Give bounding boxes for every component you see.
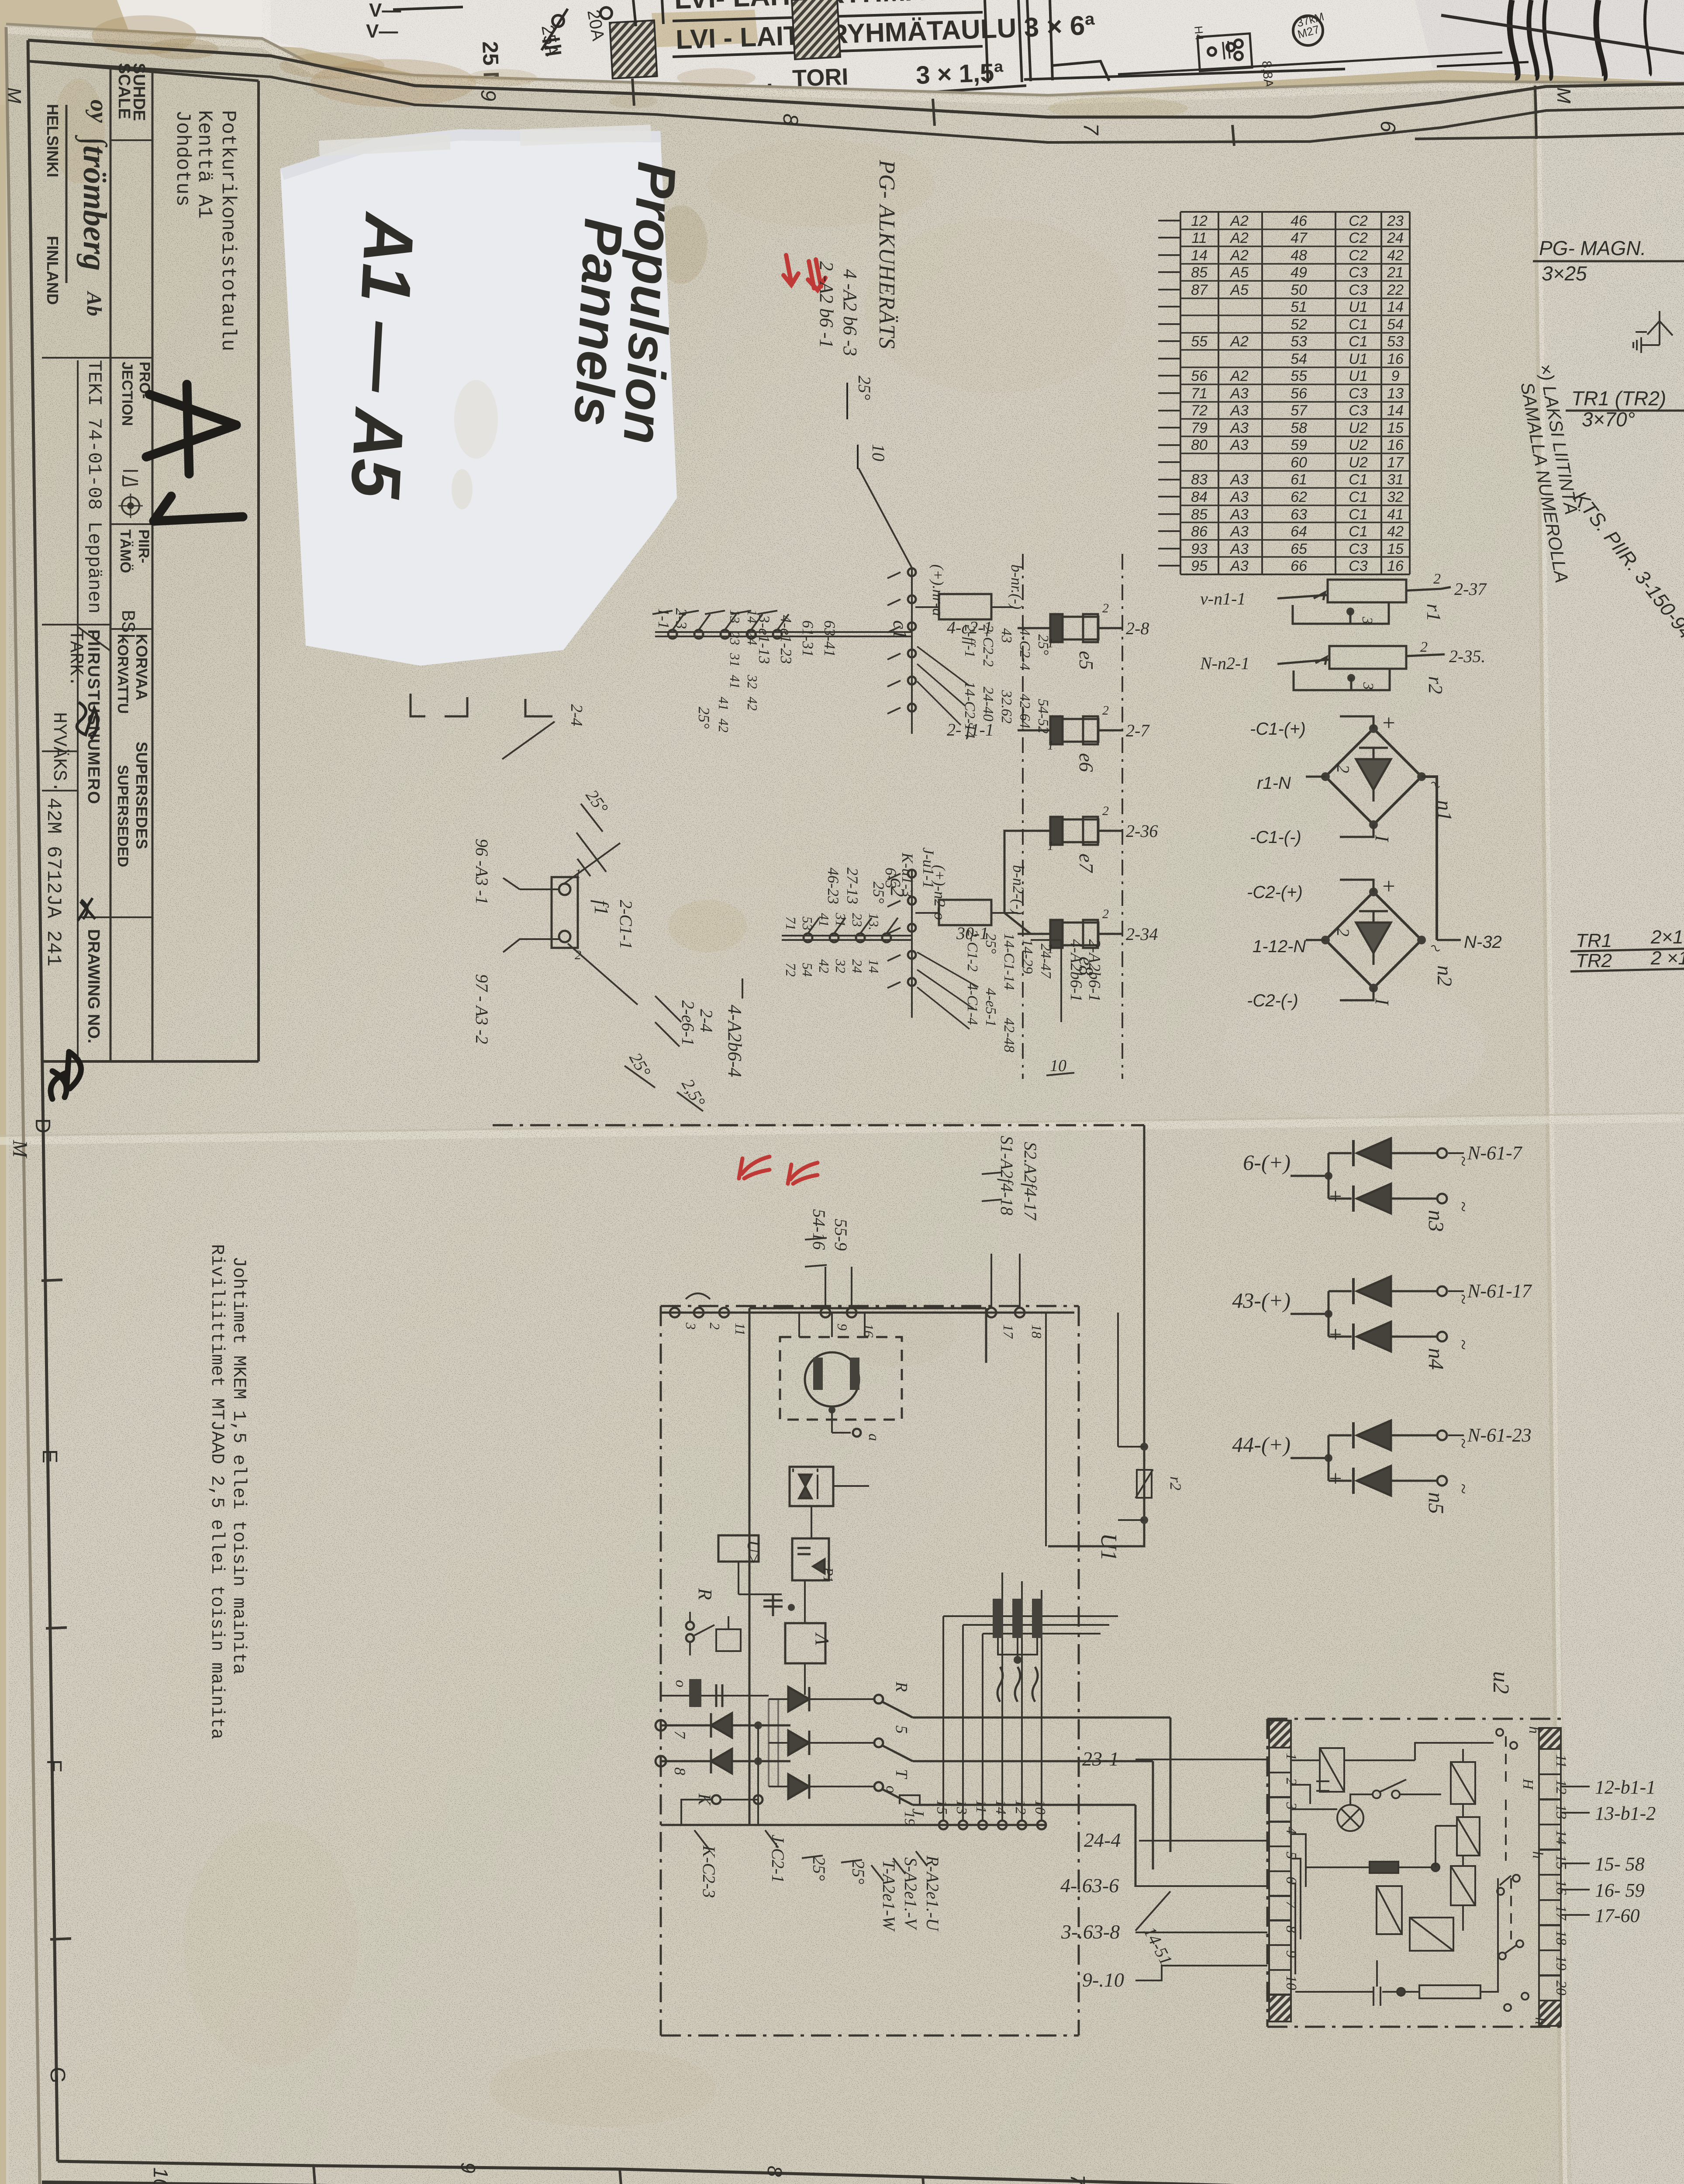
svg-text:16- 59: 16- 59 bbox=[1595, 1880, 1645, 1901]
svg-text:96 -A3 -1: 96 -A3 -1 bbox=[472, 839, 492, 905]
svg-text:SUPERSEDES: SUPERSEDES bbox=[133, 742, 151, 849]
svg-text:8: 8 bbox=[1283, 1925, 1299, 1933]
svg-text:C1: C1 bbox=[1349, 471, 1367, 488]
svg-text:1: 1 bbox=[1047, 738, 1054, 753]
svg-text:2-e6-1: 2-e6-1 bbox=[678, 1000, 698, 1046]
svg-text:Ab: Ab bbox=[83, 290, 106, 316]
svg-text:3×25: 3×25 bbox=[1542, 262, 1587, 285]
svg-text:22: 22 bbox=[1387, 282, 1404, 298]
svg-text:2: 2 bbox=[1420, 639, 1428, 655]
svg-text:2: 2 bbox=[1102, 804, 1109, 818]
svg-text:16: 16 bbox=[861, 1324, 877, 1337]
svg-text:16: 16 bbox=[1387, 351, 1404, 367]
svg-text:87: 87 bbox=[1191, 282, 1208, 298]
svg-text:42-64: 42-64 bbox=[1017, 694, 1033, 728]
svg-text:1: 1 bbox=[1047, 839, 1054, 853]
svg-text:5: 5 bbox=[892, 1725, 911, 1734]
svg-text:62: 62 bbox=[1291, 489, 1307, 505]
svg-text:16: 16 bbox=[1387, 437, 1404, 453]
svg-text:v-n1-1: v-n1-1 bbox=[1200, 589, 1246, 608]
svg-text:42-48: 42-48 bbox=[1001, 1018, 1017, 1052]
svg-text:2-4: 2-4 bbox=[697, 1009, 716, 1032]
svg-text:HELSINKI: HELSINKI bbox=[44, 104, 62, 177]
svg-text:56: 56 bbox=[1291, 385, 1307, 402]
svg-text:25°: 25° bbox=[1035, 634, 1051, 655]
svg-text:2-C1-2: 2-C1-2 bbox=[964, 930, 980, 971]
svg-text:U2: U2 bbox=[1349, 420, 1368, 436]
svg-text:15: 15 bbox=[934, 1800, 950, 1814]
svg-text:2-36: 2-36 bbox=[1126, 821, 1158, 841]
svg-text:A2: A2 bbox=[1229, 230, 1249, 246]
svg-text:SCALE: SCALE bbox=[115, 63, 133, 119]
svg-text:2: 2 bbox=[1333, 764, 1353, 773]
svg-text:2: 2 bbox=[1333, 928, 1353, 936]
svg-text:+: + bbox=[1328, 1466, 1343, 1491]
svg-text:PIIRUSTUSNUMERO: PIIRUSTUSNUMERO bbox=[84, 629, 103, 805]
svg-text:19: 19 bbox=[901, 1811, 918, 1826]
svg-text:80: 80 bbox=[1191, 437, 1208, 453]
svg-text:10: 10 bbox=[1050, 1057, 1066, 1075]
svg-text:-C2-(+): -C2-(+) bbox=[1247, 883, 1303, 902]
svg-text:65: 65 bbox=[1291, 541, 1307, 557]
svg-text:2 ×1,: 2 ×1, bbox=[1650, 947, 1684, 969]
svg-text:A3: A3 bbox=[1229, 558, 1249, 574]
svg-text:n4: n4 bbox=[1424, 1348, 1449, 1370]
svg-text:71: 71 bbox=[1191, 385, 1208, 402]
svg-text:14: 14 bbox=[1191, 247, 1208, 264]
svg-text:(+).nr-a: (+).nr-a bbox=[929, 564, 947, 616]
svg-text:15: 15 bbox=[1553, 1855, 1569, 1870]
svg-text:C3: C3 bbox=[1349, 541, 1368, 557]
svg-text:HYVÄKS.: HYVÄKS. bbox=[48, 712, 70, 793]
svg-text:9-.10: 9-.10 bbox=[1082, 1969, 1124, 1991]
svg-text:KORVATTU: KORVATTU bbox=[114, 634, 131, 714]
svg-text:C3: C3 bbox=[1349, 264, 1368, 281]
svg-text:Johtimet MKEM 1,5 ellei toisin: Johtimet MKEM 1,5 ellei toisin mainita bbox=[228, 1256, 249, 1675]
svg-text:+: + bbox=[1381, 711, 1396, 736]
svg-text:TR1: TR1 bbox=[1576, 930, 1612, 951]
svg-text:17: 17 bbox=[1001, 1324, 1016, 1339]
svg-text:4 -A2 b6 -3: 4 -A2 b6 -3 bbox=[839, 269, 861, 356]
svg-text:97 - A3 -2: 97 - A3 -2 bbox=[472, 974, 492, 1044]
svg-text:16: 16 bbox=[1553, 1880, 1569, 1895]
svg-text:S2.A2f4-17: S2.A2f4-17 bbox=[1021, 1142, 1040, 1221]
svg-text:SUPERSEDED: SUPERSEDED bbox=[114, 765, 131, 867]
svg-text:19: 19 bbox=[1553, 1956, 1569, 1970]
svg-text:15- 58: 15- 58 bbox=[1595, 1853, 1645, 1875]
svg-text:~: ~ bbox=[1453, 1339, 1474, 1350]
svg-text:42: 42 bbox=[716, 719, 732, 733]
svg-text:17-60: 17-60 bbox=[1595, 1905, 1640, 1926]
svg-text:56: 56 bbox=[1191, 368, 1208, 384]
svg-text:S1-A2f4-18: S1-A2f4-18 bbox=[997, 1136, 1017, 1215]
svg-text:2-C2-2: 2-C2-2 bbox=[980, 625, 996, 667]
svg-text:85: 85 bbox=[1191, 264, 1208, 281]
svg-text:A3: A3 bbox=[1229, 541, 1249, 557]
svg-text:10: 10 bbox=[149, 2167, 172, 2184]
svg-text:2-A2b6-1: 2-A2b6-1 bbox=[1085, 939, 1104, 1002]
svg-text:95: 95 bbox=[1191, 558, 1208, 574]
svg-text:r1: r1 bbox=[1423, 604, 1445, 622]
svg-text:57: 57 bbox=[1291, 402, 1308, 419]
svg-text:PIIR-: PIIR- bbox=[135, 529, 152, 563]
svg-text:72: 72 bbox=[783, 963, 799, 977]
svg-text:14-29: 14-29 bbox=[1019, 939, 1035, 974]
svg-text:14: 14 bbox=[993, 1800, 1009, 1814]
svg-text:A3: A3 bbox=[1229, 420, 1249, 436]
svg-text:b-n2-(-): b-n2-(-) bbox=[1010, 865, 1027, 915]
svg-text:32: 32 bbox=[833, 959, 849, 973]
svg-text:C3: C3 bbox=[1349, 558, 1368, 574]
svg-text:oy: oy bbox=[85, 100, 112, 123]
svg-text:Pannels: Pannels bbox=[562, 217, 634, 428]
svg-text:2-7: 2-7 bbox=[1126, 721, 1150, 740]
svg-text:T: T bbox=[892, 1769, 911, 1780]
svg-text:b-nr.(-): b-nr.(-) bbox=[1008, 564, 1025, 609]
svg-text:C3: C3 bbox=[1349, 402, 1368, 419]
svg-text:61-31: 61-31 bbox=[799, 620, 817, 657]
svg-text:41: 41 bbox=[816, 913, 832, 927]
svg-text:4-.63-6: 4-.63-6 bbox=[1060, 1874, 1119, 1897]
svg-text:8: 8 bbox=[763, 2166, 786, 2177]
svg-text:E: E bbox=[38, 1449, 61, 1463]
svg-text:A3: A3 bbox=[1229, 523, 1249, 540]
svg-text:4-C2-4: 4-C2-4 bbox=[1017, 628, 1033, 670]
svg-text:14-C2-14: 14-C2-14 bbox=[962, 681, 978, 738]
svg-text:16: 16 bbox=[1387, 558, 1404, 574]
svg-text:H: H bbox=[1520, 1778, 1536, 1790]
svg-text:14-C1-14: 14-C1-14 bbox=[1001, 933, 1017, 990]
svg-text:c1: c1 bbox=[889, 620, 911, 639]
svg-text:2: 2 bbox=[1102, 703, 1109, 718]
svg-text:R: R bbox=[892, 1681, 911, 1692]
svg-text:8: 8 bbox=[671, 1767, 689, 1775]
svg-text:42: 42 bbox=[745, 697, 760, 711]
svg-text:Kenttä A1: Kenttä A1 bbox=[193, 110, 216, 218]
svg-text:2: 2 bbox=[1433, 571, 1441, 587]
svg-text:D: D bbox=[31, 1118, 54, 1133]
svg-text:N-61-7: N-61-7 bbox=[1467, 1142, 1523, 1164]
svg-text:25°: 25° bbox=[870, 881, 887, 903]
svg-text:PG- MAGN.: PG- MAGN. bbox=[1539, 237, 1646, 259]
svg-text:h: h bbox=[1532, 2017, 1548, 2025]
svg-text:2×1,: 2×1, bbox=[1650, 926, 1684, 948]
svg-text:61: 61 bbox=[1291, 471, 1307, 488]
svg-text:TÄMÖ: TÄMÖ bbox=[117, 529, 134, 573]
svg-text:25°: 25° bbox=[983, 933, 999, 954]
svg-text:TARK.: TARK. bbox=[65, 629, 86, 687]
svg-text:h: h bbox=[1526, 1726, 1542, 1734]
svg-text:12: 12 bbox=[1191, 213, 1208, 229]
svg-text:53: 53 bbox=[1387, 333, 1404, 350]
svg-text:2: 2 bbox=[707, 1323, 723, 1330]
svg-text:55: 55 bbox=[1291, 368, 1307, 384]
svg-text:6: 6 bbox=[1376, 121, 1399, 132]
svg-text:Λ: Λ bbox=[811, 1632, 833, 1645]
svg-text:c2: c2 bbox=[887, 878, 909, 897]
svg-text:54: 54 bbox=[800, 963, 815, 977]
svg-text:2-ff-1: 2-ff-1 bbox=[962, 625, 978, 658]
svg-text:2-34: 2-34 bbox=[1126, 924, 1158, 944]
svg-text:F: F bbox=[42, 1759, 66, 1772]
svg-text:4-A2b6-1: 4-A2b6-1 bbox=[1067, 939, 1085, 1002]
svg-text:42: 42 bbox=[1387, 523, 1404, 540]
svg-text:A2: A2 bbox=[1229, 247, 1249, 264]
svg-text:2: 2 bbox=[1102, 601, 1109, 615]
svg-text:41: 41 bbox=[1387, 506, 1404, 523]
svg-text:3-e1-13: 3-e1-13 bbox=[756, 615, 773, 664]
svg-text:10: 10 bbox=[1032, 1800, 1048, 1814]
svg-text:N-n2-1: N-n2-1 bbox=[1200, 653, 1249, 673]
svg-text:N-32: N-32 bbox=[1464, 933, 1502, 952]
svg-text:49: 49 bbox=[1291, 264, 1307, 281]
svg-text:A5: A5 bbox=[1229, 264, 1249, 281]
svg-text:79: 79 bbox=[1191, 420, 1208, 436]
svg-text:A3: A3 bbox=[1229, 471, 1249, 488]
svg-text:r2: r2 bbox=[1425, 676, 1447, 694]
svg-text:60: 60 bbox=[1291, 454, 1307, 471]
svg-text:13.: 13. bbox=[866, 913, 882, 930]
svg-text:25°: 25° bbox=[809, 1856, 829, 1881]
svg-text:3: 3 bbox=[683, 1322, 699, 1330]
svg-text:r2: r2 bbox=[1167, 1476, 1184, 1490]
svg-text:C1: C1 bbox=[1349, 316, 1367, 333]
svg-text:84: 84 bbox=[1191, 489, 1208, 505]
svg-text:14: 14 bbox=[1387, 402, 1404, 419]
svg-text:9: 9 bbox=[1391, 368, 1400, 384]
svg-text:2-35.: 2-35. bbox=[1449, 646, 1485, 666]
svg-text:83: 83 bbox=[1191, 471, 1208, 488]
svg-text:4: 4 bbox=[1283, 1827, 1299, 1834]
svg-text:~: ~ bbox=[1453, 1483, 1474, 1494]
svg-text:54-16: 54-16 bbox=[809, 1209, 829, 1250]
svg-text:C1: C1 bbox=[1349, 489, 1367, 505]
svg-text:9: 9 bbox=[835, 1324, 850, 1330]
svg-text:G: G bbox=[46, 2067, 69, 2083]
svg-text:31: 31 bbox=[727, 653, 743, 667]
svg-text:11: 11 bbox=[973, 1800, 989, 1813]
svg-text:21: 21 bbox=[1387, 264, 1404, 281]
svg-text:13: 13 bbox=[727, 609, 743, 623]
svg-text:9: 9 bbox=[476, 90, 500, 101]
svg-text:A1 — A5: A1 — A5 bbox=[336, 210, 429, 501]
svg-text:U1: U1 bbox=[1349, 351, 1367, 367]
svg-text:32: 32 bbox=[745, 674, 760, 689]
svg-text:12-b1-1: 12-b1-1 bbox=[1595, 1776, 1656, 1798]
svg-text:+: + bbox=[1328, 1322, 1343, 1347]
svg-text:C3: C3 bbox=[1349, 385, 1368, 402]
svg-text:13: 13 bbox=[953, 1800, 970, 1814]
svg-text:50: 50 bbox=[1291, 282, 1307, 298]
svg-text:51: 51 bbox=[1291, 299, 1307, 315]
svg-text:14: 14 bbox=[866, 959, 882, 973]
svg-text:32.62: 32.62 bbox=[998, 690, 1015, 724]
svg-text:11: 11 bbox=[1191, 230, 1207, 246]
svg-text:54: 54 bbox=[1387, 316, 1404, 333]
svg-text:31: 31 bbox=[1387, 471, 1404, 488]
svg-text:46-23: 46-23 bbox=[825, 867, 842, 904]
svg-text:r1-N: r1-N bbox=[1257, 774, 1291, 793]
svg-text:N-61-23: N-61-23 bbox=[1467, 1424, 1532, 1446]
svg-text:54-52: 54-52 bbox=[1035, 699, 1051, 733]
svg-text:A3: A3 bbox=[1229, 489, 1249, 505]
svg-text:93: 93 bbox=[1191, 541, 1208, 557]
svg-text:43-(+): 43-(+) bbox=[1232, 1288, 1291, 1313]
svg-text:A2: A2 bbox=[1229, 333, 1249, 350]
svg-text:A3: A3 bbox=[1229, 402, 1249, 419]
svg-text:U2: U2 bbox=[1349, 437, 1368, 453]
svg-text:P1: P1 bbox=[821, 1567, 836, 1583]
svg-text:15: 15 bbox=[1387, 420, 1404, 436]
svg-text:7: 7 bbox=[1283, 1901, 1299, 1909]
svg-text:20: 20 bbox=[1553, 1980, 1569, 1995]
svg-text:Johdotus: Johdotus bbox=[171, 110, 194, 207]
svg-text:DRAWING NO.: DRAWING NO. bbox=[84, 929, 103, 1044]
svg-text:55-9: 55-9 bbox=[831, 1219, 851, 1251]
svg-text:TEKI 74-01-08 Leppänen: TEKI 74-01-08 Leppänen bbox=[83, 360, 105, 614]
svg-text:e6: e6 bbox=[1075, 753, 1097, 772]
svg-text:24-4: 24-4 bbox=[1084, 1829, 1121, 1851]
svg-text:n2: n2 bbox=[1433, 965, 1456, 986]
svg-text:63: 63 bbox=[1291, 506, 1307, 523]
svg-text:A3: A3 bbox=[1229, 506, 1249, 523]
svg-text:42: 42 bbox=[1387, 247, 1404, 264]
svg-text:55: 55 bbox=[1191, 333, 1208, 350]
svg-text:3-.63-8: 3-.63-8 bbox=[1061, 1921, 1120, 1943]
svg-text:2-3: 2-3 bbox=[673, 608, 690, 629]
svg-text:64: 64 bbox=[1291, 523, 1307, 540]
svg-text:2-8: 2-8 bbox=[1126, 619, 1149, 638]
svg-text:U>: U> bbox=[744, 1540, 763, 1565]
svg-text:e7: e7 bbox=[1075, 854, 1097, 873]
svg-text:14: 14 bbox=[1553, 1830, 1569, 1845]
svg-text:7: 7 bbox=[1079, 123, 1102, 136]
svg-text:17: 17 bbox=[1553, 1905, 1569, 1921]
svg-text:13: 13 bbox=[1387, 385, 1404, 402]
svg-text:52: 52 bbox=[1291, 316, 1307, 333]
svg-text:53: 53 bbox=[1291, 333, 1307, 350]
svg-text:4-A2b6-4: 4-A2b6-4 bbox=[724, 1005, 745, 1077]
svg-text:25°: 25° bbox=[695, 707, 713, 729]
svg-text:31: 31 bbox=[833, 912, 849, 927]
svg-text:U2: U2 bbox=[1349, 454, 1368, 471]
svg-text:A5: A5 bbox=[1229, 282, 1249, 298]
svg-text:o: o bbox=[673, 1680, 689, 1687]
svg-text:25°: 25° bbox=[849, 1860, 868, 1884]
svg-text:T-A2e1-W: T-A2e1-W bbox=[879, 1860, 899, 1932]
svg-text:-C1-(-): -C1-(-) bbox=[1250, 828, 1301, 847]
svg-text:14: 14 bbox=[1387, 299, 1404, 315]
svg-text:41: 41 bbox=[716, 697, 732, 711]
svg-text:C2: C2 bbox=[1349, 230, 1368, 246]
svg-text:24: 24 bbox=[1387, 230, 1404, 246]
svg-text:M: M bbox=[8, 1140, 31, 1159]
svg-text:C2: C2 bbox=[1349, 213, 1368, 229]
svg-text:-C2-(-): -C2-(-) bbox=[1247, 991, 1298, 1010]
svg-text:2: 2 bbox=[1102, 907, 1109, 921]
svg-text:A2: A2 bbox=[1229, 213, 1249, 229]
svg-text:48: 48 bbox=[1291, 247, 1307, 264]
svg-text:n5: n5 bbox=[1424, 1492, 1449, 1514]
svg-text:24: 24 bbox=[849, 959, 865, 973]
svg-text:46: 46 bbox=[1291, 213, 1307, 229]
svg-text:10: 10 bbox=[869, 444, 888, 461]
svg-text:JECTION: JECTION bbox=[119, 362, 135, 426]
svg-text:66: 66 bbox=[1291, 558, 1307, 574]
svg-text:h: h bbox=[1529, 1851, 1546, 1859]
svg-text:13-b1-2: 13-b1-2 bbox=[1595, 1803, 1656, 1824]
svg-text:18: 18 bbox=[1553, 1930, 1569, 1945]
svg-text:2-4: 2-4 bbox=[567, 704, 586, 726]
svg-text:FINLAND: FINLAND bbox=[44, 236, 62, 305]
svg-text:8: 8 bbox=[779, 114, 802, 125]
svg-text:9: 9 bbox=[1283, 1950, 1299, 1958]
svg-text:KORVAA: KORVAA bbox=[133, 634, 151, 701]
svg-text:Riviliittimet MTJAAD 2,5 ellei: Riviliittimet MTJAAD 2,5 ellei toisin ma… bbox=[207, 1244, 228, 1739]
svg-text:71: 71 bbox=[783, 916, 799, 930]
svg-text:+: + bbox=[1328, 1184, 1343, 1209]
svg-text:63-41: 63-41 bbox=[821, 620, 839, 657]
svg-text:2 -A2 b6 -1: 2 -A2 b6 -1 bbox=[816, 261, 837, 348]
svg-text:U1: U1 bbox=[1349, 368, 1367, 384]
svg-text:TR2: TR2 bbox=[1576, 950, 1612, 971]
svg-text:3: 3 bbox=[1360, 682, 1376, 690]
svg-text:-C1-(+): -C1-(+) bbox=[1250, 719, 1306, 739]
svg-text:32: 32 bbox=[1387, 489, 1404, 505]
svg-text:58: 58 bbox=[1291, 420, 1307, 436]
svg-text:2-C1-1: 2-C1-1 bbox=[616, 900, 636, 949]
svg-text:47: 47 bbox=[1291, 230, 1308, 246]
svg-text:24-47: 24-47 bbox=[1038, 943, 1054, 979]
svg-text:R-A2e1.-U: R-A2e1.-U bbox=[923, 1855, 942, 1932]
svg-text:S-A2e1.-V: S-A2e1.-V bbox=[901, 1857, 921, 1931]
svg-text:43: 43 bbox=[998, 628, 1015, 643]
svg-text:7: 7 bbox=[671, 1731, 689, 1739]
svg-text:53: 53 bbox=[800, 916, 815, 930]
svg-text:24-40: 24-40 bbox=[980, 687, 996, 721]
svg-text:a: a bbox=[866, 1434, 882, 1441]
svg-text:86: 86 bbox=[1191, 523, 1208, 540]
svg-text:54: 54 bbox=[1291, 351, 1307, 367]
svg-text:PG- ALKUHERÄTS: PG- ALKUHERÄTS bbox=[874, 159, 899, 349]
svg-text:42: 42 bbox=[816, 959, 832, 973]
svg-text:1-12-N: 1-12-N bbox=[1253, 937, 1306, 956]
svg-text:9: 9 bbox=[457, 2162, 480, 2174]
svg-text:18: 18 bbox=[1029, 1324, 1045, 1338]
svg-text:17: 17 bbox=[1387, 454, 1404, 471]
svg-text:n3: n3 bbox=[1424, 1210, 1449, 1232]
svg-text:A3: A3 bbox=[1229, 385, 1249, 402]
svg-text:25°: 25° bbox=[855, 376, 874, 400]
svg-text:u2: u2 bbox=[1488, 1671, 1513, 1694]
svg-text:23: 23 bbox=[727, 631, 743, 645]
svg-text:59: 59 bbox=[1291, 437, 1307, 453]
svg-text:M: M bbox=[3, 87, 25, 104]
svg-text:C1: C1 bbox=[1349, 523, 1367, 540]
svg-text:23: 23 bbox=[1387, 213, 1404, 229]
svg-text:K-C2-3: K-C2-3 bbox=[699, 1845, 719, 1898]
svg-text:10: 10 bbox=[1283, 1975, 1299, 1990]
svg-text:1-1: 1-1 bbox=[655, 608, 673, 629]
svg-text:+: + bbox=[1381, 874, 1396, 899]
svg-text:J-C2-1: J-C2-1 bbox=[768, 1835, 788, 1883]
svg-text:42M 6712JA 241: 42M 6712JA 241 bbox=[42, 798, 65, 966]
svg-text:C1: C1 bbox=[1349, 506, 1367, 523]
svg-text:6-(+): 6-(+) bbox=[1243, 1150, 1291, 1175]
svg-text:C3: C3 bbox=[1349, 282, 1368, 298]
svg-text:23: 23 bbox=[849, 913, 865, 927]
svg-text:I: I bbox=[1371, 835, 1393, 843]
